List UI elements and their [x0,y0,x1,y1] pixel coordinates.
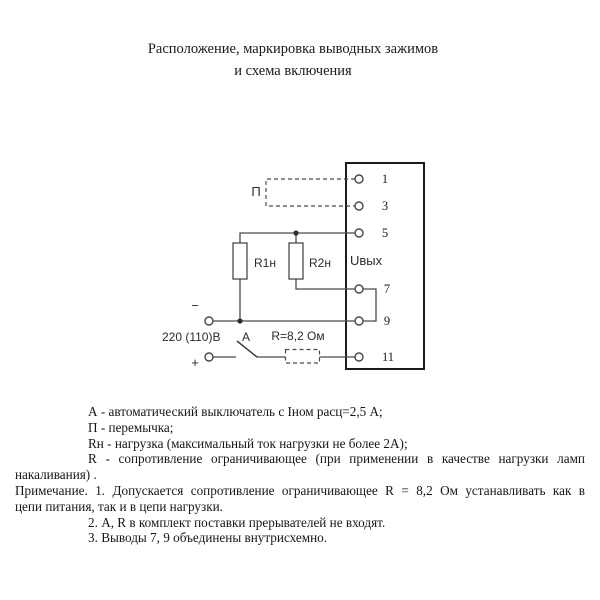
load2-label: R2н [309,256,331,270]
terminal-number-9: 9 [384,314,390,328]
plus-sign: + [191,355,199,370]
breaker-label: А [242,330,250,344]
limit-resistor-label: R=8,2 Ом [271,329,324,343]
terminal-number-3: 3 [382,199,388,213]
note-line-resistor-2: накаливания) . [15,467,585,483]
note-line-jumper: П - перемычка; [15,420,585,436]
terminal-circle-5 [355,229,363,237]
resistor-load1 [233,243,247,279]
note-line-remark-4: 3. Выводы 7, 9 объединены внутрисхемно. [15,530,585,546]
limit-resistor-dashed-box [286,350,320,364]
terminal-circle-7 [355,285,363,293]
note-line-resistor-1: R - сопротивление ограничивающее (при пр… [15,451,585,467]
terminal-circle-11 [355,353,363,361]
document-page: Расположение, маркировка выводных зажимо… [0,0,600,600]
output-voltage-label: Uвых [350,253,383,268]
terminal-circle-1 [355,175,363,183]
junction-dot-bottom [237,318,242,323]
resistor-load2 [289,243,303,279]
supply-plus-terminal [205,353,213,361]
load1-label: R1н [254,256,276,270]
notes-block: А - автоматический выключатель с Iном ра… [15,404,585,546]
jumper-dashed-wire [266,179,355,206]
minus-sign: − [191,298,199,313]
note-line-remark-3: 2. А, R в комплект поставки прерывателей… [15,515,585,531]
terminal-number-5: 5 [382,226,388,240]
jumper-label: П [251,184,260,199]
supply-voltage-label: 220 (110)В [162,330,220,344]
note-line-breaker: А - автоматический выключатель с Iном ра… [15,404,585,420]
terminal-circle-3 [355,202,363,210]
terminal-circle-9 [355,317,363,325]
junction-dot-top [293,230,298,235]
note-line-remark-2: цепи питания, так и в цепи нагрузки. [15,499,585,515]
terminal-number-7: 7 [384,282,390,296]
supply-minus-terminal [205,317,213,325]
terminal-number-11: 11 [382,350,394,364]
note-line-load: Rн - нагрузка (максимальный ток нагрузки… [15,436,585,452]
note-line-remark-1: Примечание. 1. Допускается сопротивление… [15,483,585,499]
terminal-number-1: 1 [382,172,388,186]
